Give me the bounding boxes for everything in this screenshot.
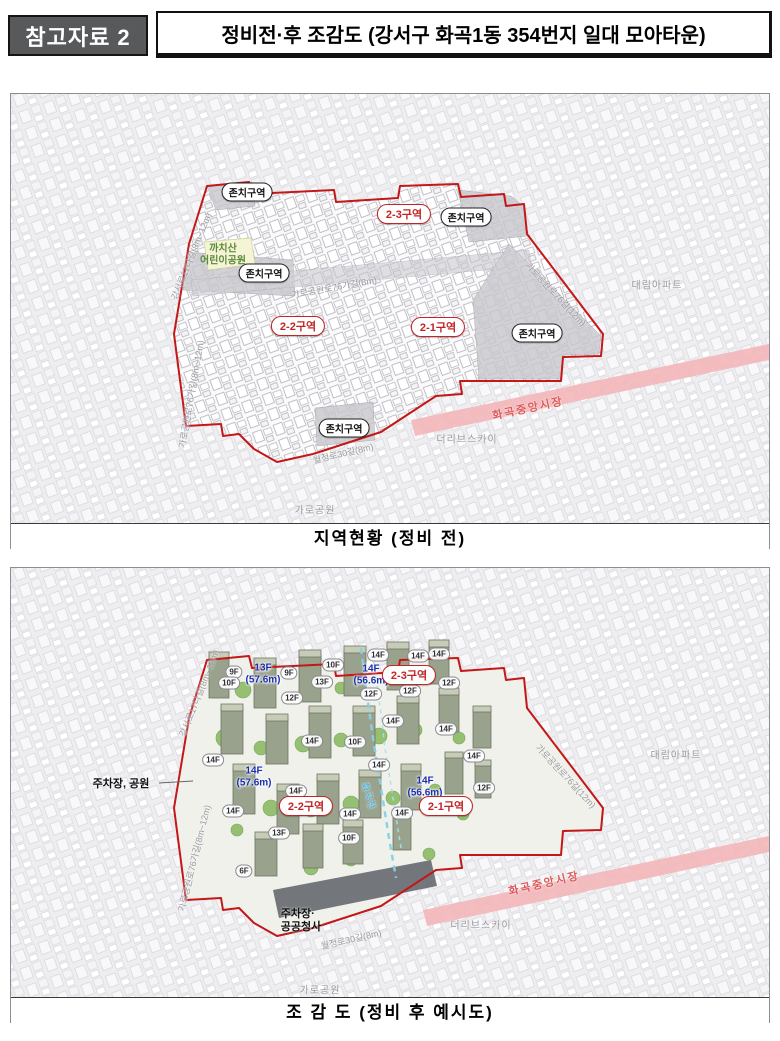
parking-public-line1: 주차장· — [281, 908, 321, 921]
zone-bubble-2-1: 2-1구역 — [419, 796, 473, 816]
place-label: 가로공원 — [295, 502, 336, 517]
preserved-zone-bubble: 존치구역 — [319, 419, 370, 438]
caption-before: 지역현황 (정비 전) — [11, 523, 769, 549]
place-label: 더리브스카이 — [436, 431, 497, 446]
floor-tag: 14F — [435, 723, 457, 736]
floor-tag: 14F — [368, 759, 390, 772]
place-label: 가로공원 — [300, 982, 341, 997]
height-floors: 14F — [236, 766, 271, 778]
place-label: 대림아파트 — [651, 747, 702, 762]
floor-tag: 13F — [311, 676, 333, 689]
preserved-zone-bubble: 존치구역 — [222, 183, 273, 202]
height-meters: (57.6m) — [245, 674, 280, 686]
floor-tag: 14F — [428, 648, 450, 661]
floor-tag: 14F — [301, 735, 323, 748]
floor-tag: 9F — [280, 667, 297, 680]
floor-tag: 10F — [322, 659, 344, 672]
caption-after: 조 감 도 (정비 후 예시도) — [11, 997, 769, 1023]
children-park-label: 까치산 어린이공원 — [200, 244, 246, 267]
preserved-zone-bubble: 존치구역 — [512, 324, 563, 343]
floor-tag: 12F — [360, 688, 382, 701]
floor-tag: 14F — [367, 649, 389, 662]
preserved-zone-bubble: 존치구역 — [239, 264, 290, 283]
zone-bubble-2-2: 2-2구역 — [271, 316, 325, 336]
children-park-line1: 까치산 — [200, 244, 246, 256]
floor-tag: 14F — [407, 650, 429, 663]
floor-tag: 14F — [202, 754, 224, 767]
parking-park-note: 주차장, 공원 — [93, 775, 150, 791]
floor-tag: 12F — [281, 692, 303, 705]
floor-tag: 14F — [391, 807, 413, 820]
map-after: 9F 10F 9F 10F 13F 12F 14F 14F 12F 12F 14… — [11, 568, 769, 997]
zone-bubble-2-3: 2-3구역 — [377, 204, 431, 224]
page-title: 정비전·후 조감도 (강서구 화곡1동 354번지 일대 모아타운) — [156, 11, 772, 58]
floor-tag: 14F — [222, 805, 244, 818]
place-label: 더리브스카이 — [450, 917, 511, 932]
height-floors: 13F — [245, 663, 280, 675]
height-meters: (57.6m) — [236, 777, 271, 789]
floor-tag: 14F — [339, 808, 361, 821]
reference-badge: 참고자료 2 — [8, 15, 148, 56]
map-before-drawing — [11, 94, 769, 523]
floor-tag: 12F — [473, 782, 495, 795]
zone-bubble-2-1: 2-1구역 — [411, 317, 465, 337]
floor-tag: 10F — [218, 677, 240, 690]
floor-tag: 6F — [235, 865, 252, 878]
panel-after: 9F 10F 9F 10F 13F 12F 14F 14F 12F 12F 14… — [10, 567, 770, 1023]
floor-tag: 13F — [268, 827, 290, 840]
height-label: 14F (57.6m) — [236, 766, 271, 789]
floor-tag: 12F — [399, 685, 421, 698]
floor-tag: 12F — [438, 677, 460, 690]
floor-tag: 10F — [344, 736, 366, 749]
parking-public-line2: 공공청사 — [281, 921, 321, 934]
panel-before: 존치구역 존치구역 존치구역 존치구역 존치구역 2-3구역 2-2구역 2-1… — [10, 93, 770, 549]
zone-bubble-2-3: 2-3구역 — [382, 665, 436, 685]
floor-tag: 14F — [382, 715, 404, 728]
height-label: 13F (57.6m) — [245, 663, 280, 686]
floor-tag: 10F — [338, 832, 360, 845]
preserved-zone-bubble: 존치구역 — [441, 208, 492, 227]
height-floors: 14F — [407, 776, 442, 788]
parking-public-note: 주차장· 공공청사 — [281, 908, 321, 934]
floor-tag: 14F — [463, 750, 485, 763]
children-park-line2: 어린이공원 — [200, 255, 246, 267]
place-label: 대림아파트 — [632, 277, 683, 292]
page: 참고자료 2 정비전·후 조감도 (강서구 화곡1동 354번지 일대 모아타운… — [0, 0, 780, 1041]
zone-bubble-2-2: 2-2구역 — [279, 796, 333, 816]
map-before: 존치구역 존치구역 존치구역 존치구역 존치구역 2-3구역 2-2구역 2-1… — [11, 94, 769, 523]
